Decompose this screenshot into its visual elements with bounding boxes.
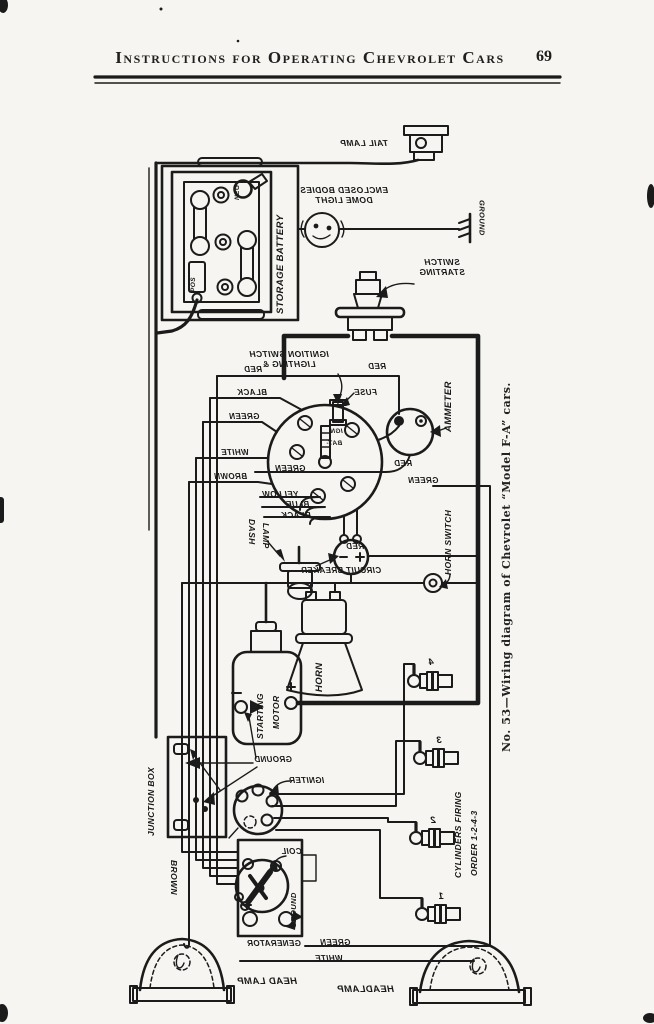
ground-symbol: [459, 214, 470, 242]
horn-switch-label: HORN SWITCH: [444, 497, 454, 575]
ground-motor-label: GROUND: [254, 755, 292, 764]
starting-switch: [284, 272, 478, 703]
starting-motor-label-2: MOTOR: [272, 667, 282, 729]
white-bottom-label: WHITE: [315, 954, 343, 963]
dome-light: [298, 213, 459, 247]
plug-number-4: 4: [428, 658, 434, 669]
wire-black-label: BLACK: [237, 388, 267, 397]
brown-left-label: BROWN: [168, 860, 178, 918]
figure-caption: No. 53—Wiring diagram of Chevrolet “Mode…: [500, 340, 513, 752]
ammeter: [387, 409, 446, 455]
dash-lamp-label-2: LAMP: [260, 523, 270, 569]
plug-number-2: 2: [430, 816, 436, 827]
head-lamp-right-label: HEADLAMP: [337, 985, 394, 996]
igniter-label: IGNITER: [289, 776, 324, 785]
header-rule: [95, 77, 560, 83]
fuse-label: FUSE: [354, 388, 377, 397]
plug-number-1: 1: [438, 892, 444, 903]
dome-light-label: ENCLOSED BODIES DOME LIGHT: [296, 186, 392, 206]
neg-terminal-label: NEG: [234, 176, 241, 200]
bat-terminal-label: BAT-: [326, 440, 342, 447]
circuit-breaker-label: CIRCUIT BREAKER: [301, 566, 381, 575]
pos-terminal-label: POS: [190, 266, 197, 292]
green-bottom-label: GREEN: [320, 938, 350, 947]
generator: [235, 840, 316, 936]
plug-number-3: 3: [436, 736, 442, 747]
green-mid-label: GREEN: [275, 464, 305, 473]
green-right-label: GREEN: [408, 476, 438, 485]
coil-label: COIL: [281, 847, 302, 856]
red-fuse-area-label: RED: [368, 362, 386, 371]
wiring-diagram-art: [0, 0, 654, 1024]
wire-green-label: GREEN: [229, 412, 259, 421]
head-lamp-left-label: HEAD LAMP: [237, 977, 297, 988]
ground-top-label: GROUND: [477, 200, 486, 252]
junction-box-label: JUNCTION BOX: [147, 714, 157, 836]
red-horn-label: RED: [346, 542, 364, 551]
wire-brown-label: BROWN: [214, 472, 247, 481]
ammeter-label: AMMETER: [444, 348, 455, 432]
storage-battery-label: STORAGE BATTERY: [276, 182, 287, 314]
yellow-label: YELLOW: [262, 490, 299, 499]
dash-lamp-label-1: DASH: [246, 519, 256, 565]
wire-white-label: WHITE: [221, 448, 249, 457]
wire-red-label: RED: [244, 365, 262, 374]
horn-label: HORN: [315, 648, 326, 692]
cylinders-firing-label-1: CYLINDERS FIRING: [454, 726, 464, 878]
starting-switch-label: SWITCH STARTING: [406, 258, 478, 278]
blue-label: BLUE: [286, 500, 309, 509]
generator-label: GENERATOR: [247, 939, 301, 948]
black-mid-label: BLACK: [281, 511, 311, 520]
cylinders-firing-label-2: ORDER 1-2-4-3: [470, 740, 480, 876]
book-page: Instructions for Operating Chevrolet Car…: [0, 0, 654, 1024]
ground-generator-label: GROUND: [290, 878, 299, 928]
head-lamp-right: [410, 941, 531, 1005]
ign-terminal-label: IGN: [330, 428, 343, 435]
scan-noise: [0, 0, 654, 1023]
red-below-ammeter-label: RED: [394, 459, 412, 468]
head-lamp-left: [130, 939, 234, 1003]
tail-lamp-label: TAIL LAMP: [340, 139, 388, 149]
horn-switch-button: [182, 574, 478, 592]
starting-motor-label-1: STARTING: [256, 655, 266, 739]
